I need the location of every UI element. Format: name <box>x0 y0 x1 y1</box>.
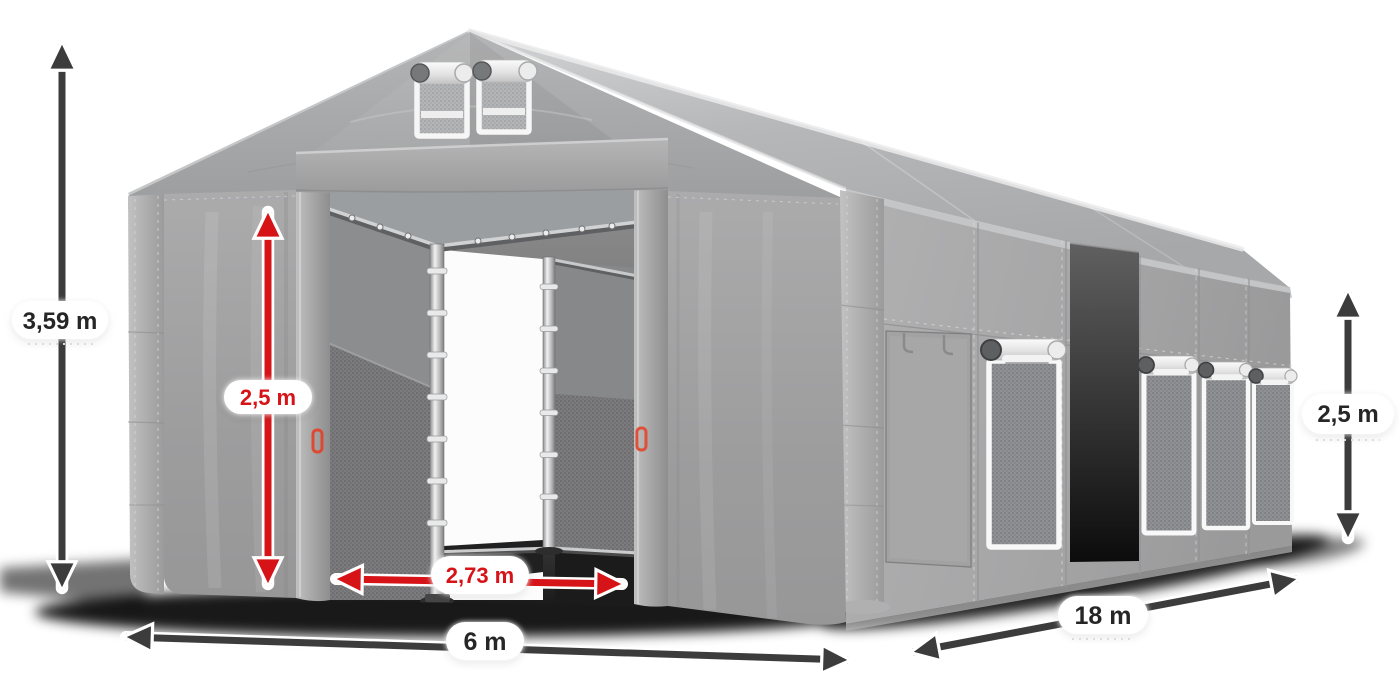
window-frame <box>1204 378 1248 528</box>
interior <box>326 187 638 608</box>
side-window-2 <box>1138 356 1199 533</box>
gable-vent-left <box>411 62 473 136</box>
portal-post-right <box>634 150 668 607</box>
dim-total-height: 3,59 m <box>12 44 108 588</box>
vent-roll-cap <box>473 62 491 80</box>
window-roll-cap <box>1199 363 1214 378</box>
dim-side-length-label: 18 m <box>1058 596 1148 639</box>
interior-mesh-panel-right <box>555 394 638 556</box>
dim-door-width-value: 2,73 m <box>446 563 515 588</box>
corner-column-front-right <box>838 190 890 614</box>
dim-wall-height: 2,5 m <box>1302 292 1394 538</box>
side-door <box>886 331 971 567</box>
dim-front-width-label: 6 m <box>446 622 524 660</box>
front-door-panel-right <box>668 191 846 625</box>
side-window-3 <box>1199 362 1253 528</box>
dim-side-length-value: 18 m <box>1075 602 1132 630</box>
window-frame <box>989 361 1059 547</box>
corner-pillar-front-left <box>128 194 164 594</box>
gable-vent-right <box>473 60 537 132</box>
side-window-4 <box>1249 368 1297 523</box>
dim-door-height-value: 2,5 m <box>240 385 296 410</box>
vent-roll-cap <box>519 62 537 80</box>
vent-frame <box>417 77 467 136</box>
window-roll-cap <box>1138 357 1154 373</box>
tent-product-illustration: 3,59 m 2,5 m 2,73 m 6 m <box>0 0 1400 700</box>
dim-wall-height-value: 2,5 m <box>1317 401 1378 428</box>
vent-roll-cap <box>455 64 473 82</box>
window-frame <box>1254 383 1292 523</box>
dim-total-height-value: 3,59 m <box>23 308 98 335</box>
window-frame <box>1144 373 1194 533</box>
interior-mesh-panel-right-top <box>555 262 638 400</box>
vent-roll-cap <box>411 64 429 82</box>
side-window-1 <box>981 339 1066 547</box>
dim-front-width-value: 6 m <box>463 628 506 656</box>
dim-total-height-label: 3,59 m <box>12 301 108 344</box>
vent-crossbar <box>483 108 525 115</box>
dim-door-height-label: 2,5 m <box>224 380 312 414</box>
dim-door-width-label: 2,73 m <box>431 556 529 594</box>
side-doorway-opening <box>1070 243 1139 562</box>
window-roll-cap <box>981 340 1001 360</box>
vent-crossbar <box>421 111 463 118</box>
vent-frame <box>479 75 529 132</box>
portal-post-left <box>296 152 330 601</box>
dim-wall-height-label: 2,5 m <box>1302 394 1394 440</box>
